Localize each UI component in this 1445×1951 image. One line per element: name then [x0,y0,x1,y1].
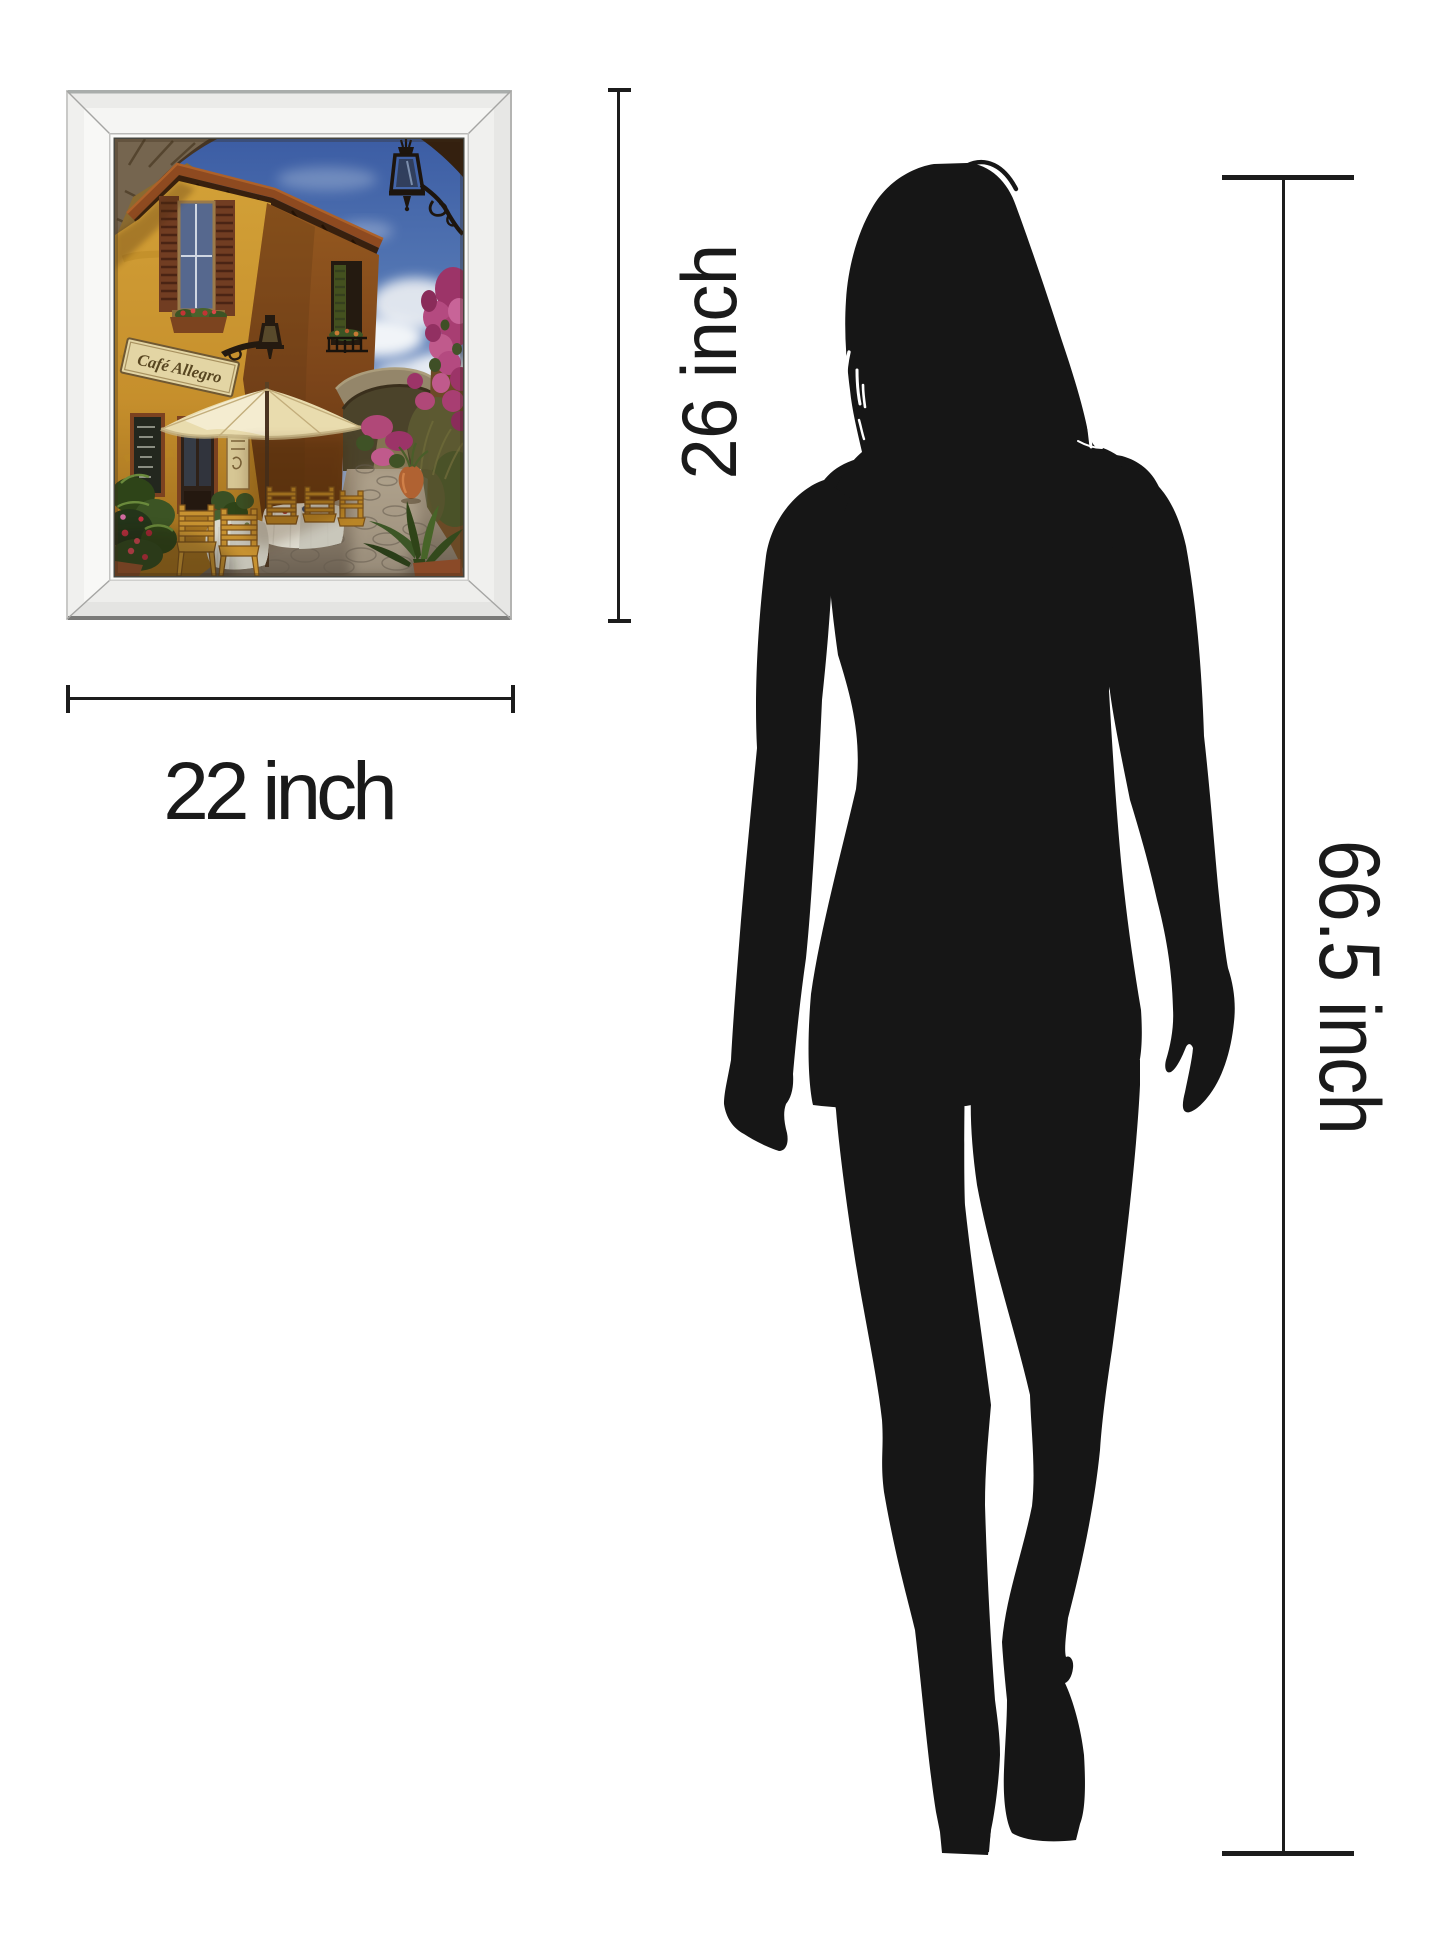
svg-text:66.5 inch: 66.5 inch [1301,840,1398,1134]
svg-text:22 inch: 22 inch [163,746,393,837]
svg-text:26 inch: 26 inch [666,244,753,479]
